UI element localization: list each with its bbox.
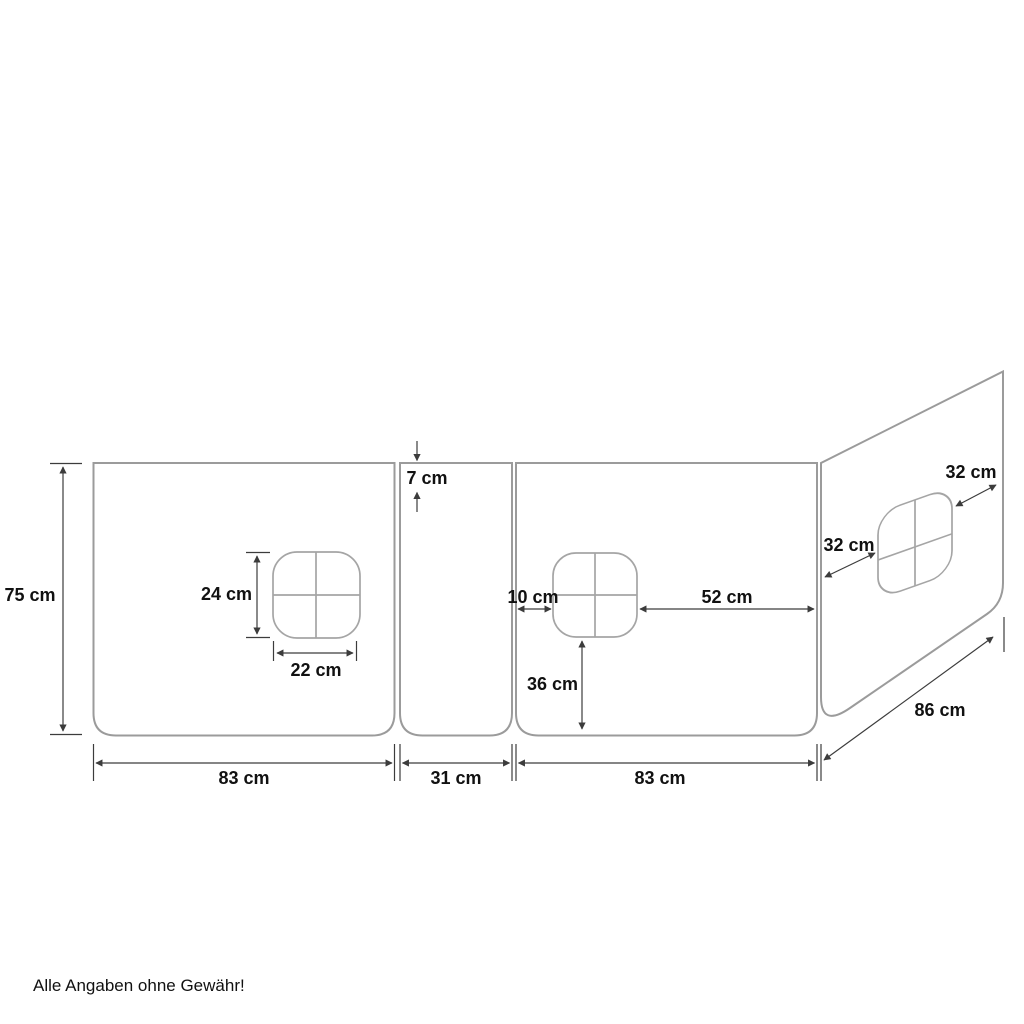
dim-left-panel-width-label: 83 cm: [218, 768, 269, 788]
right-panel: [516, 463, 817, 736]
dim-right-window-right-gap-label: 52 cm: [701, 587, 752, 607]
dim-stripe-height-label: 7 cm: [406, 468, 447, 488]
dim-panel-height: 75 cm: [4, 464, 82, 735]
dim-middle-panel-width-label: 31 cm: [430, 768, 481, 788]
dim-left-window-height-label: 24 cm: [201, 584, 252, 604]
dim-side-window-height-label: 32 cm: [823, 535, 874, 555]
disclaimer-text: Alle Angaben ohne Gewähr!: [33, 976, 245, 995]
dim-right-window-left-gap-label: 10 cm: [507, 587, 558, 607]
diagram-canvas: 75 cm 7 cm 24 cm 22 cm 83 cm 31 cm 83 cm: [0, 0, 1024, 1024]
dim-side-window-width-label: 32 cm: [945, 462, 996, 482]
dim-panel-height-label: 75 cm: [4, 585, 55, 605]
dim-left-window-width-label: 22 cm: [290, 660, 341, 680]
dim-side-panel-depth-label: 86 cm: [914, 700, 965, 720]
dim-right-panel-width-label: 83 cm: [634, 768, 685, 788]
curtain-dimension-diagram: 75 cm 7 cm 24 cm 22 cm 83 cm 31 cm 83 cm: [0, 0, 1024, 1024]
dim-right-window-left-gap: 10 cm: [507, 587, 558, 609]
dim-right-window-bottom-gap-label: 36 cm: [527, 674, 578, 694]
dim-bottom-widths: 83 cm 31 cm 83 cm: [94, 744, 822, 788]
